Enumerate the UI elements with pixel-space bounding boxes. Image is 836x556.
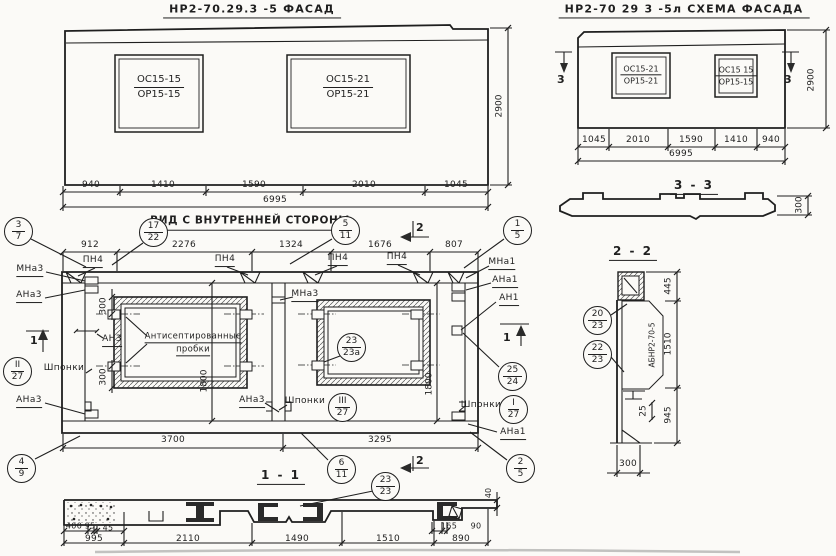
label-mna1: МНа1: [488, 258, 515, 270]
dim-label: 40: [485, 488, 493, 498]
callout-I-27: I27: [499, 395, 528, 424]
dim-label: 300: [619, 460, 637, 470]
label-ana3: АНа3: [239, 396, 265, 408]
window-mark-bottom: ОР15-21: [620, 76, 661, 86]
dim-label: 3700: [161, 436, 185, 446]
dim-label: 1800: [201, 370, 210, 393]
label-pn4: ПН4: [83, 256, 103, 268]
label-ana1: АНа1: [492, 276, 518, 288]
dim-label: 2110: [176, 535, 200, 545]
scheme-window-2-mark: ОС15 15 ОР15-15: [716, 65, 757, 86]
callout-23-23a: 2323а: [337, 333, 366, 362]
dim-label: 300: [796, 196, 805, 213]
label-ana3: АНа3: [16, 291, 42, 303]
label-ana1: АНа1: [500, 428, 526, 440]
label-mna3: МНа3: [291, 290, 318, 302]
section-3-3: [560, 193, 812, 219]
callout-III-27: III27: [328, 393, 357, 422]
dim-height-label: 2900: [808, 69, 817, 92]
dim-total-label: 6995: [669, 150, 693, 160]
dim-label: 1490: [285, 535, 309, 545]
dim-label: 1800: [426, 373, 435, 396]
label-ana3: АНа3: [16, 396, 42, 408]
dim-label: 2010: [626, 136, 650, 146]
linework-layer: [0, 0, 836, 556]
dim-label: 807: [445, 241, 463, 251]
label-antiseptic-plugs-1: Антисептированные: [145, 332, 242, 343]
callout-2-5: 25: [506, 454, 535, 483]
dim-label: 2276: [172, 241, 196, 251]
label-an1: АН1: [499, 294, 519, 306]
label-shponki: Шпонки: [44, 364, 85, 374]
dim-label: 90: [471, 523, 482, 532]
section-2-marker-top: 2: [416, 222, 424, 234]
section-1-1-label: 1 - 1: [257, 469, 305, 485]
dim-label: 25: [640, 405, 649, 416]
section-3-3-label: 3 - 3: [670, 179, 718, 195]
drawing-sheet: НР2-70.29.3 -5 ФАСАД НР2-70 29 3 -5л СХЕ…: [0, 0, 836, 556]
dim-label: 890: [452, 535, 470, 545]
dim-label: 1410: [724, 136, 748, 146]
label-pn4: ПН4: [215, 255, 235, 267]
dim-label: 945: [665, 406, 674, 423]
callout-3-7: 37: [4, 217, 33, 246]
dim-label: 400: [66, 523, 82, 532]
callout-1-5: 15: [503, 216, 532, 245]
dim-label: 1510: [665, 333, 674, 356]
callout-17-22: 1722: [139, 218, 168, 247]
facade-title: НР2-70.29.3 -5 ФАСАД: [163, 3, 341, 18]
dim-label: 3295: [368, 436, 392, 446]
callout-23-23: 2323: [371, 472, 400, 501]
scheme-window-1-mark: ОС15-21 ОР15-21: [620, 64, 661, 85]
dim-label: 995: [85, 535, 103, 545]
dim-height-label: 2900: [496, 95, 505, 118]
window-mark-top: ОС15 15: [716, 65, 757, 76]
section-1-marker-right: 1: [503, 332, 511, 344]
window-mark-bottom: ОР15-21: [323, 88, 373, 101]
callout-5-11: 511: [331, 216, 360, 245]
dim-label: 165: [441, 523, 457, 532]
window-mark-top: ОС15-21: [323, 74, 373, 88]
dim-label: 300: [100, 297, 109, 314]
label-shponki: Шпонки: [285, 397, 326, 407]
window-mark-bottom: ОР15-15: [716, 77, 757, 87]
scheme-title: НР2-70 29 3 -5л СХЕМА ФАСАДА: [559, 3, 810, 18]
dim-label: 1045: [582, 136, 606, 146]
dim-label: 300: [100, 368, 109, 385]
dim-label: 1510: [376, 535, 400, 545]
dim-label: 1676: [368, 241, 392, 251]
dim-label: 1590: [242, 181, 266, 191]
dim-label: 940: [762, 136, 780, 146]
dim-label: 95: [85, 523, 96, 532]
callout-6-11: 611: [327, 455, 356, 484]
dim-label: 912: [81, 241, 99, 251]
window-mark-bottom: ОР15-15: [134, 88, 184, 101]
dim-label: 1590: [679, 136, 703, 146]
section-2-2-label: 2 - 2: [609, 245, 657, 261]
label-pn4: ПН4: [387, 253, 407, 265]
callout-4-9: 49: [7, 454, 36, 483]
dim-label: 940: [82, 181, 100, 191]
dim-label: 1410: [151, 181, 175, 191]
facade-window-2-mark: ОС15-21 ОР15-21: [323, 74, 373, 100]
label-shponki: Шпонки: [461, 401, 502, 411]
dim-label: 1324: [279, 241, 303, 251]
dim-label: 445: [665, 277, 674, 294]
dim-label: 2010: [352, 181, 376, 191]
facade-window-1-mark: ОС15-15 ОР15-15: [134, 74, 184, 100]
section-3-marker-left: 3: [557, 74, 565, 86]
dim-label: 45: [103, 525, 114, 534]
dim-label: 1045: [444, 181, 468, 191]
section-1-marker-left: 1: [30, 335, 38, 347]
callout-22-23: 2223: [583, 340, 612, 369]
label-mna3: МНа3: [16, 265, 43, 277]
section-1-1: [61, 492, 500, 546]
section-2-2: [607, 269, 681, 477]
callout-II-27: II27: [3, 357, 32, 386]
dim-total-label: 6995: [263, 196, 287, 206]
label-antiseptic-plugs-2: пробки: [176, 345, 210, 356]
callout-25-24: 2524: [498, 362, 527, 391]
label-panel-mark: АБНР2-70-5: [648, 323, 656, 368]
callout-20-23: 2023: [583, 306, 612, 335]
inner-view-title: ВИД С ВНУТРЕННЕЙ СТОРОНЫ: [146, 216, 354, 231]
window-mark-top: ОС15-21: [620, 64, 661, 75]
window-mark-top: ОС15-15: [134, 74, 184, 88]
section-3-cut-marks: [555, 52, 799, 64]
section-2-marker-bottom: 2: [416, 455, 424, 467]
label-an3: АН3: [102, 335, 122, 347]
section-3-marker-right: 3: [784, 74, 792, 86]
label-pn4: ПН4: [328, 254, 348, 266]
